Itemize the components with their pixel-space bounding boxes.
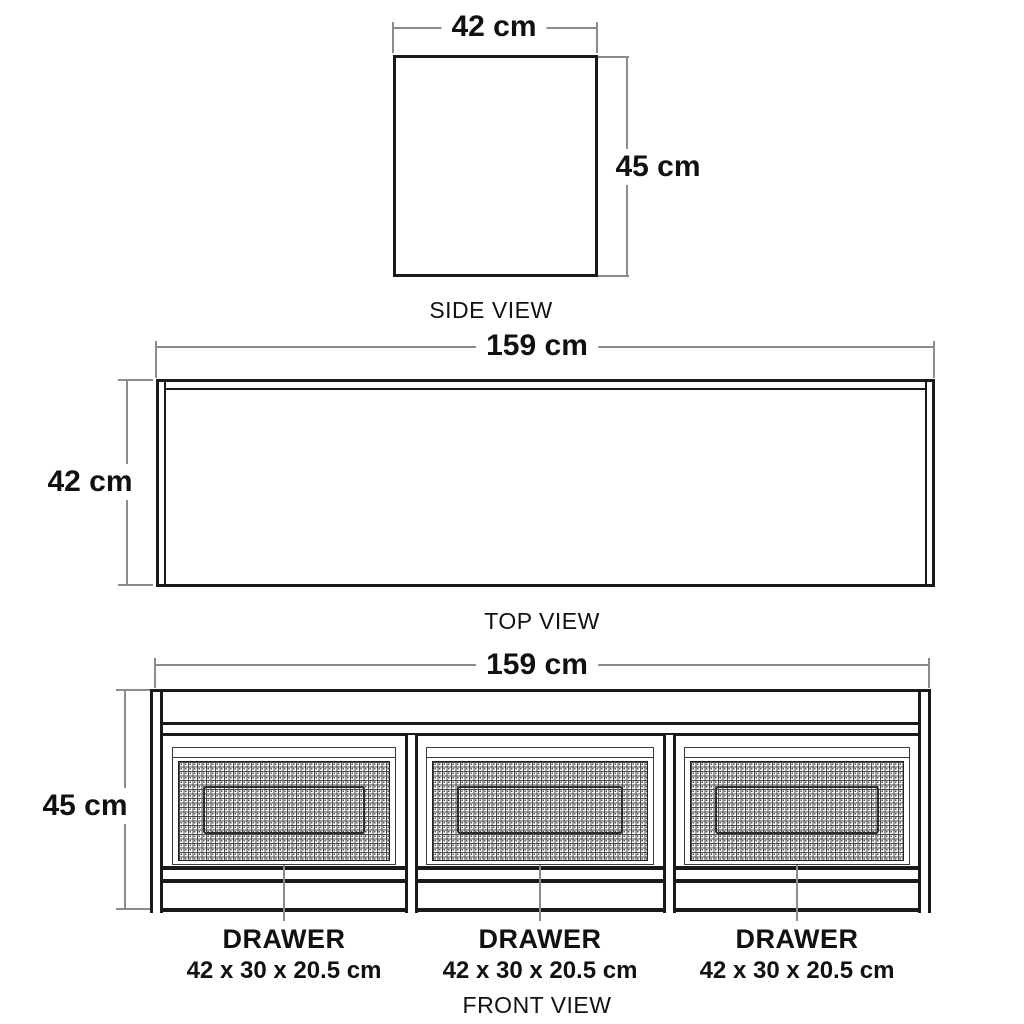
top-view-back-panel-line xyxy=(166,388,925,390)
drawer-front-3 xyxy=(684,747,910,865)
top-width-label: 159 cm xyxy=(476,328,598,364)
top-depth-label: 42 cm xyxy=(37,464,142,500)
upper-rail-line xyxy=(150,733,931,736)
side-view-caption: SIDE VIEW xyxy=(429,297,552,324)
front-view-caption: FRONT VIEW xyxy=(463,992,612,1019)
drawer-1-size-label: 42 x 30 x 20.5 cm xyxy=(187,957,382,985)
tabletop-bottom-line xyxy=(150,722,931,725)
top-width-tick-left xyxy=(155,341,157,378)
left-leg xyxy=(150,692,163,913)
top-depth-tick-top xyxy=(118,379,153,381)
drawer-2-size-label: 42 x 30 x 20.5 cm xyxy=(443,957,638,985)
front-width-tick-right xyxy=(928,658,930,688)
side-view-outline xyxy=(393,55,598,277)
drawer-2-recess-outline xyxy=(457,786,623,834)
top-view-outline xyxy=(156,379,935,587)
divider-post-1 xyxy=(405,735,418,913)
drawer-2-label: DRAWER xyxy=(479,924,602,955)
drawer-2-cane-mesh-panel xyxy=(432,761,648,861)
drawer-3-label: DRAWER xyxy=(736,924,859,955)
side-height-tick-top xyxy=(598,56,629,58)
drawer-3-cane-mesh-panel xyxy=(690,761,904,861)
drawer-front-1 xyxy=(172,747,396,865)
front-view-outline xyxy=(150,689,931,921)
drawer-1-leader-line xyxy=(283,863,285,921)
front-height-tick-bottom xyxy=(116,908,151,910)
drawer-1-top-rail xyxy=(173,748,395,758)
drawer-3-top-rail xyxy=(685,748,909,758)
right-leg xyxy=(918,692,931,913)
drawer-1-label: DRAWER xyxy=(223,924,346,955)
furniture-dimension-diagram: 42 cm 45 cm SIDE VIEW 159 cm 42 cm TOP V… xyxy=(0,0,1024,1024)
drawer-3-leader-line xyxy=(796,863,798,921)
top-view-left-panel-line xyxy=(164,382,166,584)
side-width-label: 42 cm xyxy=(441,9,546,45)
top-view-caption: TOP VIEW xyxy=(484,608,600,635)
drawer-3-recess-outline xyxy=(715,786,879,834)
tabletop-top-line xyxy=(150,689,931,692)
front-width-label: 159 cm xyxy=(476,647,598,683)
drawer-3-size-label: 42 x 30 x 20.5 cm xyxy=(700,957,895,985)
side-width-tick-left xyxy=(392,22,394,53)
top-width-tick-right xyxy=(933,341,935,378)
top-depth-tick-bottom xyxy=(118,584,153,586)
drawer-1-recess-outline xyxy=(203,786,365,834)
side-width-tick-right xyxy=(596,22,598,53)
front-height-label: 45 cm xyxy=(32,788,137,824)
front-height-tick-top xyxy=(116,689,151,691)
side-height-label: 45 cm xyxy=(605,149,710,185)
drawer-2-leader-line xyxy=(539,863,541,921)
side-height-tick-bottom xyxy=(598,275,629,277)
drawer-1-cane-mesh-panel xyxy=(178,761,390,861)
drawer-front-2 xyxy=(426,747,654,865)
divider-post-2 xyxy=(663,735,676,913)
top-view-right-panel-line xyxy=(925,382,927,584)
drawer-2-top-rail xyxy=(427,748,653,758)
front-width-tick-left xyxy=(154,658,156,688)
